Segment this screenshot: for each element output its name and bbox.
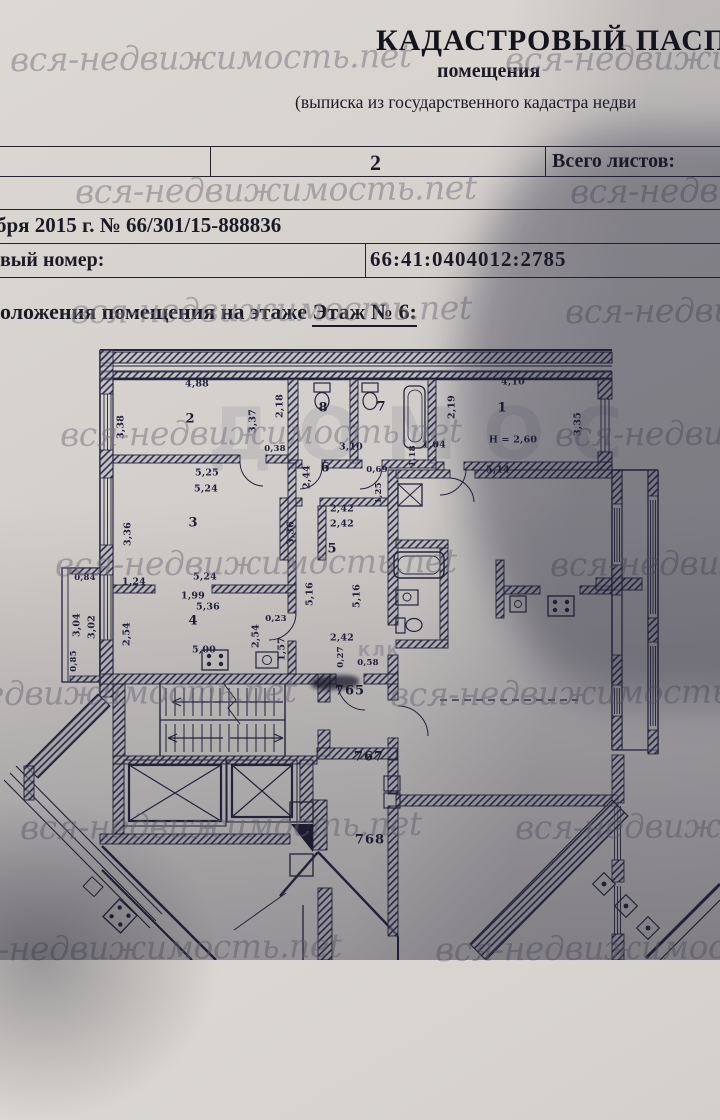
table-line-top: [0, 146, 720, 147]
cadastral-number-value: 66:41:0404012:2785: [370, 247, 566, 272]
sheet-number-cell: 2: [370, 150, 381, 176]
rule-above-date: [0, 209, 720, 210]
page-subtitle: помещения: [437, 60, 540, 83]
document-date-number: бря 2015 г. № 66/301/15-888836: [0, 213, 281, 238]
page-title: КАДАСТРОВЫЙ ПАСПОРТ: [376, 24, 720, 58]
site-watermark-text: вся-недвижимость.net: [10, 36, 412, 79]
site-watermark-text: вся-недвижимость.net: [570, 168, 720, 211]
page-note: (выписка из государственного кадастра не…: [295, 92, 636, 113]
table-divider-1: [210, 146, 211, 176]
photographed-cadastral-passport: { "header": { "title": "КАДАСТРОВЫЙ ПАСП…: [0, 0, 720, 960]
site-watermark-text: вся-недвижимость.net: [565, 288, 720, 331]
table-line-bottom: [0, 176, 720, 177]
table-divider-2: [545, 146, 546, 176]
cadastral-cell-divider: [365, 243, 366, 277]
ghost-logo-watermark-small: КЛК: [358, 642, 401, 660]
floor-number-value: Этаж № 6:: [312, 299, 416, 327]
cadastral-number-label: вый номер:: [0, 249, 104, 272]
site-watermark-text: вся-недвижимость.net: [75, 168, 477, 211]
rule-below-cadastral: [0, 277, 720, 278]
total-sheets-label: Всего листов:: [552, 150, 675, 173]
rule-below-date: [0, 243, 720, 244]
floor-location-line: оложения помещения на этаже Этаж № 6:: [0, 299, 417, 325]
floor-location-prefix: оложения помещения на этаже: [0, 299, 312, 324]
